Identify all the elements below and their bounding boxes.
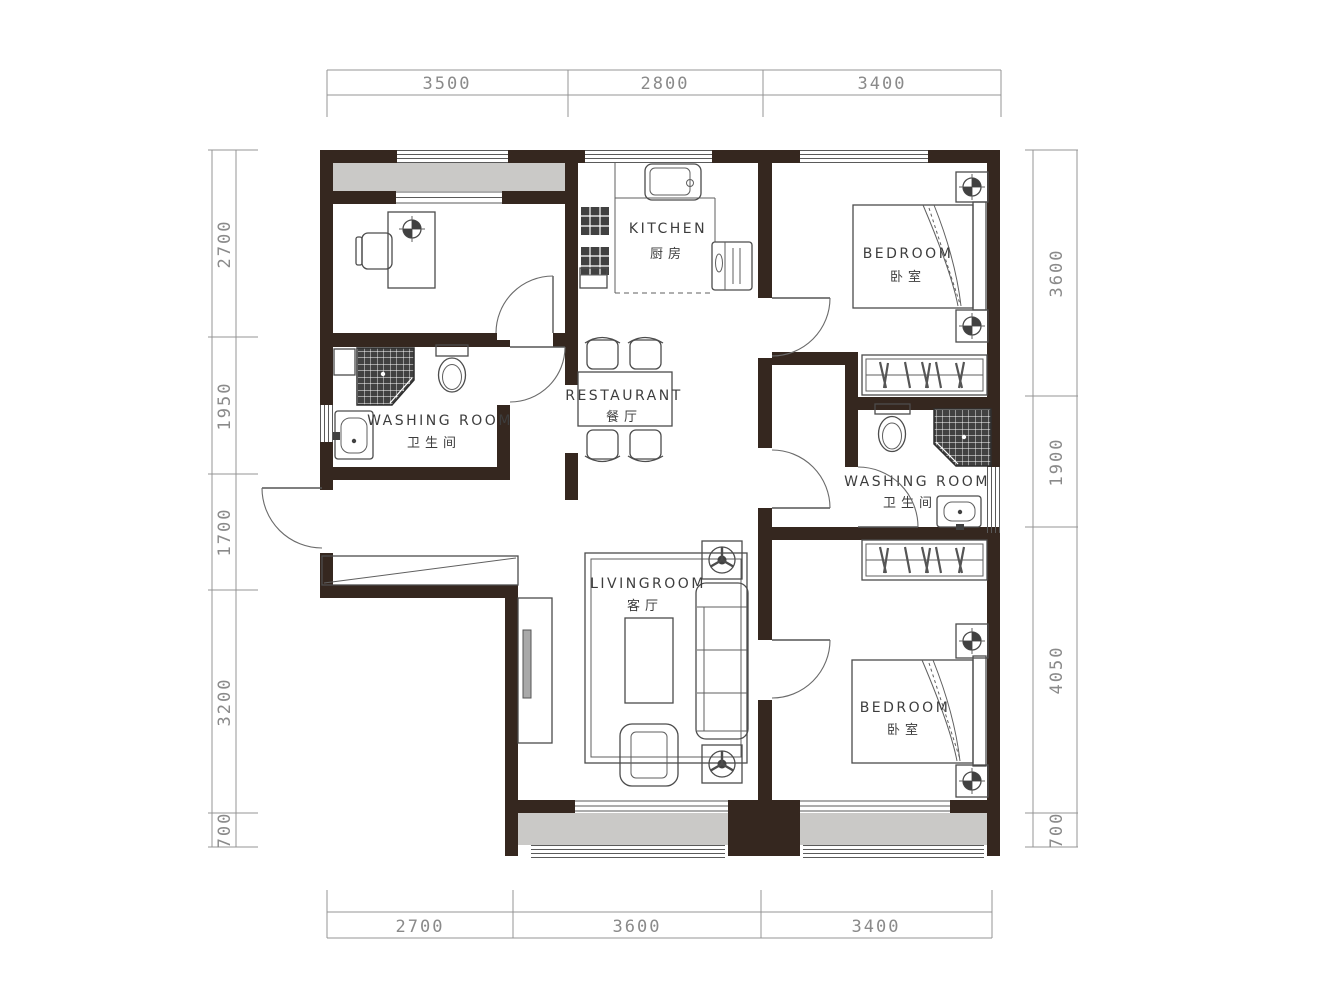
shower [357, 348, 414, 405]
dim-top-0: 3500 [423, 74, 472, 94]
restaurant-room: RESTAURANT 餐厅 [565, 338, 683, 462]
lamp-icon [959, 174, 985, 200]
window-left-washroom [321, 405, 333, 442]
dim-right-1: 1900 [1047, 438, 1067, 487]
headboard [973, 656, 986, 766]
sofa [696, 583, 748, 739]
shower [934, 409, 991, 466]
floor-plan-page: KITCHEN 厨房 RESTAURANT 餐厅 [0, 0, 1333, 1000]
window-top-bedroom [800, 151, 928, 163]
toilet [875, 404, 910, 452]
dim-left-1: 1950 [215, 382, 235, 431]
office-door [496, 276, 553, 333]
room-label-livingroom-en: LIVINGROOM [590, 576, 706, 592]
shoe-cabinet [322, 556, 518, 585]
dim-left-0: 2700 [215, 220, 235, 269]
cabinet [334, 349, 355, 375]
room-label-washroom-left-cn: 卫生间 [407, 436, 461, 451]
dining-chair [585, 338, 620, 370]
room-label-bedroom-bottom-cn: 卧室 [887, 722, 923, 738]
bedroom-top-door [772, 298, 830, 356]
window-top-office [397, 151, 508, 163]
speaker-icon [702, 541, 742, 579]
floor-plan-svg: KITCHEN 厨房 RESTAURANT 餐厅 [0, 0, 1333, 1000]
room-label-washroom-right-en: WASHING ROOM [844, 474, 990, 490]
dim-left-3: 3200 [215, 678, 235, 727]
dimension-top: 3500 2800 3400 [327, 70, 1001, 117]
coffee-table [625, 618, 673, 703]
dining-chair [628, 338, 663, 370]
dim-left-2: 1700 [215, 508, 235, 557]
window-livingroom-balcony-slider [575, 801, 728, 811]
sink [645, 164, 701, 200]
room-label-bedroom-bottom-en: BEDROOM [860, 700, 951, 716]
dining-chair [628, 430, 663, 462]
dimension-left: 2700 1950 1700 3200 700 [208, 150, 258, 848]
stove [580, 207, 609, 288]
bedroom-bottom-door [772, 640, 830, 698]
bedroom-bottom-room: BEDROOM 卧室 [852, 540, 988, 797]
bedroom-top-room: BEDROOM 卧室 [853, 172, 988, 395]
office-balcony-floor [333, 163, 565, 191]
dimension-right: 3600 1900 4050 700 [1025, 150, 1078, 848]
headboard [973, 202, 986, 310]
room-label-restaurant-cn: 餐厅 [606, 409, 642, 425]
dim-top-1: 2800 [641, 74, 690, 94]
tv [523, 630, 531, 698]
bedroom-balcony-floor [800, 813, 987, 845]
room-label-bedroom-top-en: BEDROOM [863, 246, 954, 262]
room-label-bedroom-top-cn: 卧室 [890, 269, 926, 285]
room-label-washroom-right-cn: 卫生间 [883, 496, 937, 511]
entry-door-arc [262, 488, 322, 548]
livingroom-room: LIVINGROOM 客厅 [518, 541, 748, 786]
lamp-icon [959, 628, 985, 654]
hall-door [772, 450, 830, 508]
window-bedroom-balcony-slider [800, 801, 950, 811]
dim-bottom-2: 3400 [852, 917, 901, 937]
room-label-kitchen-en: KITCHEN [629, 221, 707, 237]
office-room [356, 212, 435, 288]
window-bottom-right-balcony [803, 846, 984, 858]
washbasin [937, 496, 981, 530]
kitchen-room: KITCHEN 厨房 [580, 163, 752, 293]
dim-bottom-1: 3600 [613, 917, 662, 937]
dimension-bottom: 2700 3600 3400 [327, 890, 992, 938]
wardrobe [862, 355, 987, 395]
room-label-livingroom-cn: 客厅 [627, 598, 663, 614]
window-office-balcony-slider [396, 192, 502, 203]
dim-top-2: 3400 [858, 74, 907, 94]
dim-right-0: 3600 [1047, 249, 1067, 298]
lamp-icon [959, 768, 985, 794]
washroom-left-door [510, 347, 565, 402]
dim-right-3: 700 [1047, 812, 1067, 849]
toilet [436, 345, 468, 392]
speaker-icon [702, 745, 742, 783]
dining-chair [585, 430, 620, 462]
fridge [712, 242, 752, 290]
desk-chair [356, 233, 392, 269]
dim-bottom-0: 2700 [396, 917, 445, 937]
room-label-kitchen-cn: 厨房 [650, 246, 686, 262]
dim-left-4: 700 [215, 812, 235, 849]
desk-lamp-icon [399, 216, 425, 242]
window-bottom-left-balcony [531, 846, 725, 858]
room-label-restaurant-en: RESTAURANT [565, 388, 683, 404]
livingroom-balcony-floor [518, 813, 728, 845]
lamp-icon [959, 313, 985, 339]
entry [262, 488, 518, 585]
tv-cabinet [518, 598, 552, 743]
washroom-left-room: WASHING ROOM 卫生间 [333, 345, 513, 459]
armchair [620, 724, 678, 786]
dim-right-2: 4050 [1047, 646, 1067, 695]
window-top-kitchen [585, 151, 712, 163]
room-label-washroom-left-en: WASHING ROOM [367, 413, 513, 429]
wardrobe [862, 540, 987, 580]
